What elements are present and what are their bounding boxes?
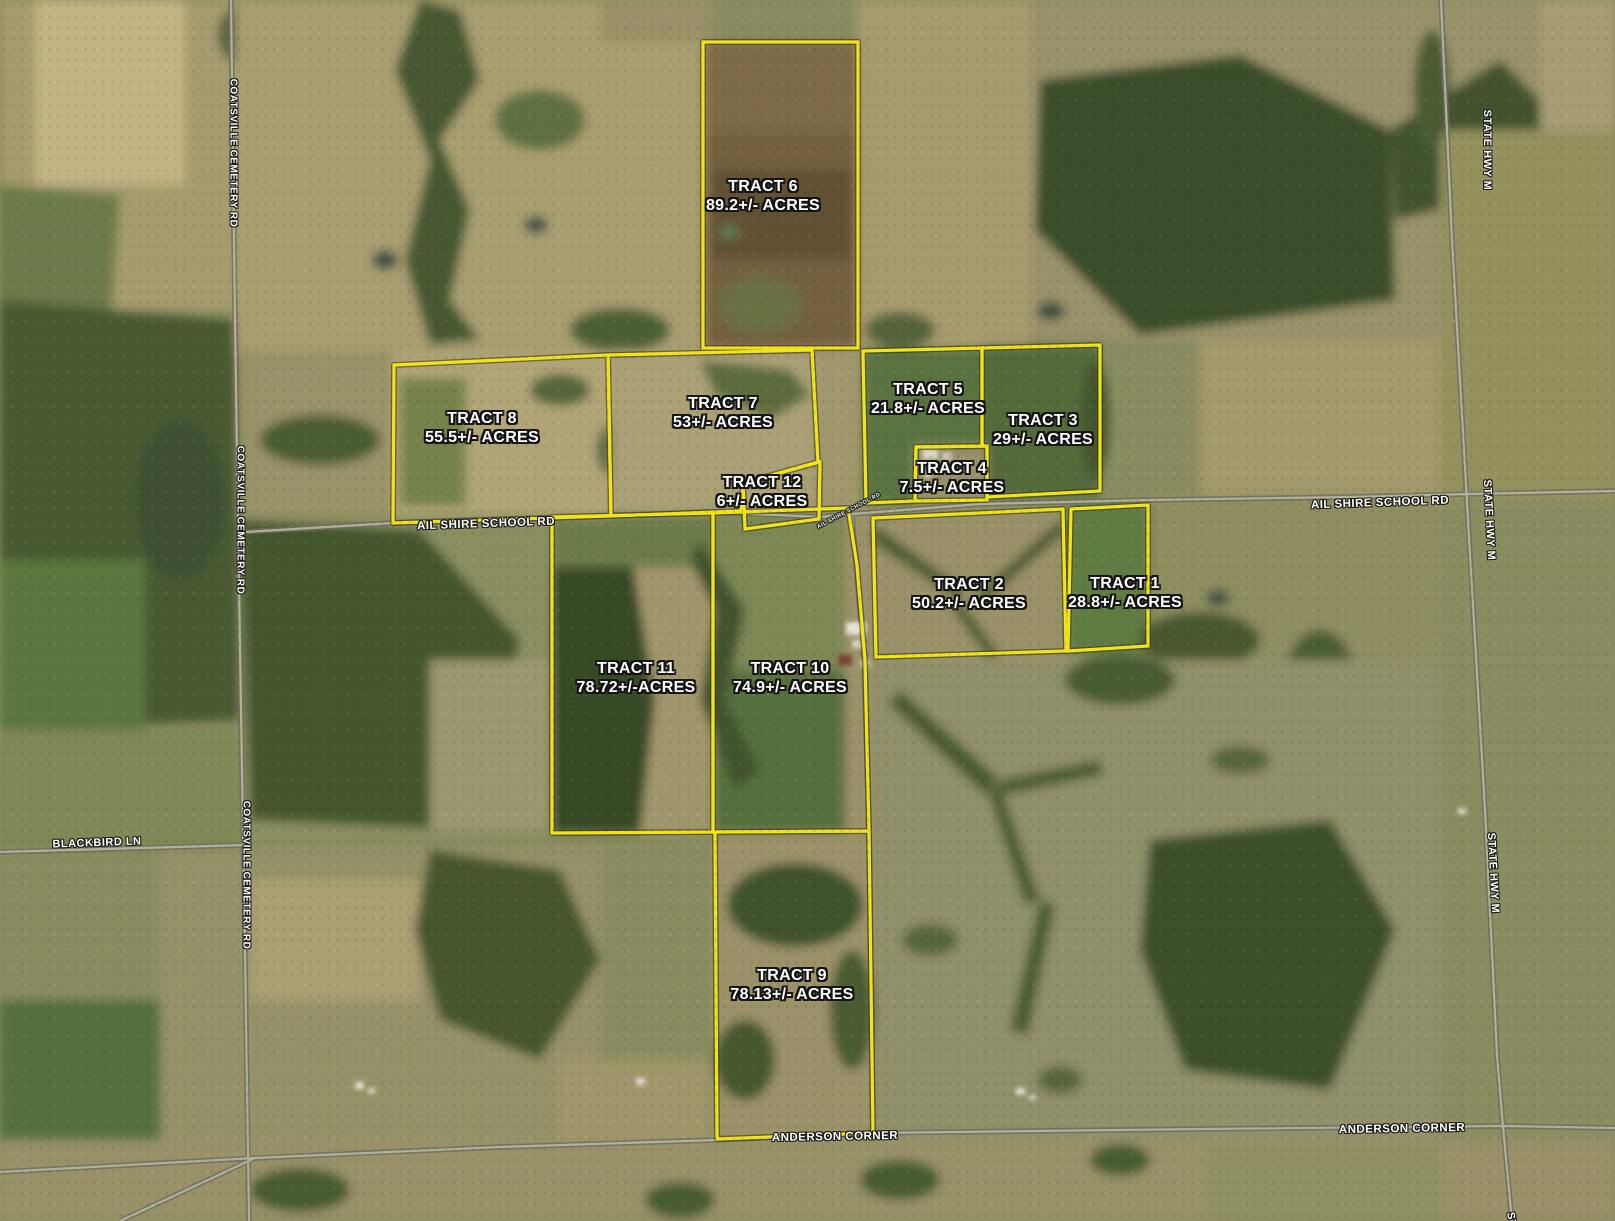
road-label-state-hwy-m-2: STATE HWY M — [1481, 479, 1497, 560]
tract-name: TRACT 2 — [912, 575, 1026, 594]
tract-acres: 6+/- ACRES — [717, 492, 808, 511]
road-label-ail-shire-school-rd-west: AIL SHIRE SCHOOL RD — [417, 516, 555, 533]
tract-name: TRACT 5 — [871, 380, 985, 399]
road-label-coatsville-cemetery-rd-1: COATSVILLE CEMETERY RD — [228, 79, 239, 228]
tract-name: TRACT 9 — [730, 966, 853, 985]
tract-name: TRACT 6 — [706, 177, 820, 196]
road-label-ail-shire-school-rd-east: AIL SHIRE SCHOOL RD — [1311, 495, 1449, 512]
tract-acres: 74.9+/- ACRES — [733, 678, 847, 697]
tract-name: TRACT 7 — [673, 394, 773, 413]
tract-acres: 28.8+/- ACRES — [1068, 593, 1182, 612]
tract-name: TRACT 1 — [1068, 574, 1182, 593]
road-label-anderson-corner-west: ANDERSON CORNER — [772, 1130, 899, 1144]
tract-label-3: TRACT 329+/- ACRES — [993, 411, 1093, 449]
road-label-blackbird-ln: BLACKBIRD LN — [52, 835, 141, 850]
tract-acres: 78.72+/-ACRES — [576, 678, 695, 697]
road-label-state-hwy-m-4: STATE HWY M — [1504, 1211, 1530, 1221]
tract-label-10: TRACT 1074.9+/- ACRES — [733, 659, 847, 697]
tract-name: TRACT 8 — [425, 409, 539, 428]
tract-acres: 53+/- ACRES — [673, 413, 773, 432]
road-label-state-hwy-m-3: STATE HWY M — [1485, 832, 1501, 913]
road-label-state-hwy-m-1: STATE HWY M — [1481, 110, 1493, 191]
tract-label-12: TRACT 126+/- ACRES — [717, 473, 808, 511]
tract-name: TRACT 3 — [993, 411, 1093, 430]
tract-acres: 89.2+/- ACRES — [706, 196, 820, 215]
road-label-ail-shire-school-rd-small: AIL SHIRE SCHOOL RD — [816, 492, 882, 531]
tract-label-7: TRACT 753+/- ACRES — [673, 394, 773, 432]
tract-label-5: TRACT 521.8+/- ACRES — [871, 380, 985, 418]
tract-name: TRACT 4 — [900, 459, 1005, 478]
tract-name: TRACT 11 — [576, 659, 695, 678]
tract-label-1: TRACT 128.8+/- ACRES — [1068, 574, 1182, 612]
aerial-tract-map: TRACT 689.2+/- ACRESTRACT 855.5+/- ACRES… — [0, 0, 1615, 1221]
tract-acres: 29+/- ACRES — [993, 430, 1093, 449]
tract-label-2: TRACT 250.2+/- ACRES — [912, 575, 1026, 613]
tract-label-4: TRACT 47.5+/- ACRES — [900, 459, 1005, 497]
label-layer: TRACT 689.2+/- ACRESTRACT 855.5+/- ACRES… — [0, 0, 1615, 1221]
tract-label-9: TRACT 978.13+/- ACRES — [730, 966, 853, 1004]
tract-label-6: TRACT 689.2+/- ACRES — [706, 177, 820, 215]
tract-name: TRACT 12 — [717, 473, 808, 492]
tract-acres: 55.5+/- ACRES — [425, 428, 539, 447]
road-label-anderson-corner-east: ANDERSON CORNER — [1339, 1122, 1466, 1136]
road-label-coatsville-cemetery-rd-2: COATSVILLE CEMETERY RD — [235, 446, 246, 595]
tract-label-11: TRACT 1178.72+/-ACRES — [576, 659, 695, 697]
tract-acres: 21.8+/- ACRES — [871, 399, 985, 418]
tract-acres: 7.5+/- ACRES — [900, 478, 1005, 497]
tract-acres: 78.13+/- ACRES — [730, 985, 853, 1004]
tract-name: TRACT 10 — [733, 659, 847, 678]
road-label-coatsville-cemetery-rd-3: COATSVILLE CEMETERY RD — [241, 801, 252, 950]
tract-label-8: TRACT 855.5+/- ACRES — [425, 409, 539, 447]
tract-acres: 50.2+/- ACRES — [912, 594, 1026, 613]
